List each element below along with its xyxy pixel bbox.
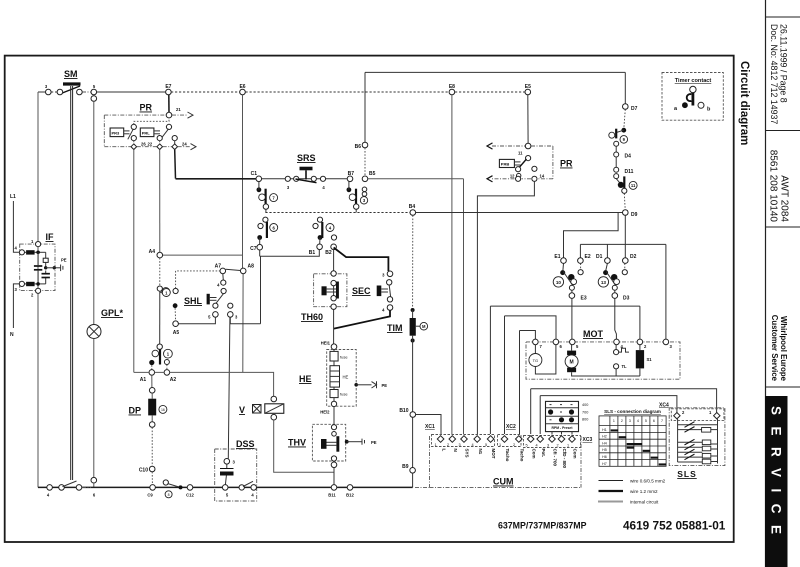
svg-text:fuse: fuse [340, 355, 348, 360]
svg-text:D7: D7 [631, 106, 638, 112]
svg-text:A1: A1 [140, 377, 147, 383]
svg-text:D9: D9 [631, 212, 638, 218]
svg-text:PE: PE [382, 383, 388, 388]
svg-text:16: 16 [161, 408, 165, 412]
svg-text:B1: B1 [309, 250, 316, 256]
svg-text:D2: D2 [630, 254, 637, 260]
svg-text:SM: SM [64, 69, 78, 79]
svg-text:1: 1 [499, 443, 501, 447]
svg-text:H5: H5 [602, 448, 607, 452]
svg-text:AWT 2084: AWT 2084 [779, 175, 790, 222]
svg-text:M: M [422, 324, 426, 329]
svg-text:26: 26 [141, 141, 146, 146]
svg-text:3: 3 [547, 444, 549, 448]
svg-text:3: 3 [629, 419, 631, 423]
svg-text:PE: PE [61, 258, 67, 263]
svg-text:4: 4 [536, 444, 538, 448]
svg-text:MOT: MOT [491, 449, 496, 459]
svg-text:CfD - 800: CfD - 800 [562, 449, 567, 469]
svg-text:D11: D11 [625, 169, 634, 175]
svg-text:5: 5 [645, 419, 647, 423]
svg-text:C7: C7 [250, 246, 257, 252]
svg-text:1: 1 [435, 443, 437, 447]
svg-text:2: 2 [447, 443, 449, 447]
svg-text:B4: B4 [409, 204, 416, 210]
svg-text:SRS: SRS [297, 153, 316, 163]
svg-text:RPM - Preset: RPM - Preset [552, 426, 574, 430]
svg-text:HE/2: HE/2 [320, 410, 330, 415]
svg-text:B2: B2 [325, 250, 332, 256]
svg-text:Timer contact: Timer contact [675, 78, 712, 84]
svg-text:1: 1 [613, 419, 615, 423]
svg-text:Tacho: Tacho [505, 449, 510, 462]
svg-text:26.11.1999 / Page 8: 26.11.1999 / Page 8 [779, 24, 789, 103]
svg-text:11: 11 [518, 151, 523, 156]
svg-text:SEC: SEC [352, 286, 371, 296]
svg-text:Doc. No: 4812 712 14937: Doc. No: 4812 712 14937 [769, 24, 779, 124]
svg-text:PRL: PRL [142, 131, 151, 136]
svg-text:L1: L1 [10, 194, 16, 200]
svg-text:Com: Com [573, 449, 578, 459]
svg-text:1: 1 [567, 444, 569, 448]
svg-text:HEI1: HEI1 [321, 341, 331, 346]
svg-text:XC4: XC4 [659, 403, 669, 409]
svg-text:D1: D1 [596, 254, 603, 260]
svg-text:C9: C9 [147, 493, 153, 498]
svg-text:SLS - connection diagram: SLS - connection diagram [604, 409, 661, 414]
svg-text:MOT: MOT [583, 329, 603, 339]
svg-text:400: 400 [582, 403, 588, 407]
svg-text:CfI - 700: CfI - 700 [553, 449, 558, 467]
svg-text:5: 5 [485, 443, 487, 447]
svg-text:Customer Service: Customer Service [770, 315, 779, 382]
svg-text:PR3: PR3 [112, 131, 121, 136]
svg-text:4619 752 05881-01: 4619 752 05881-01 [623, 519, 726, 533]
svg-text:E2: E2 [585, 254, 591, 260]
svg-text:A8: A8 [248, 264, 255, 270]
svg-text:PR: PR [140, 103, 153, 113]
svg-text:H7: H7 [602, 462, 607, 466]
svg-text:22: 22 [148, 141, 153, 146]
svg-text:4: 4 [472, 443, 474, 447]
svg-text:24: 24 [182, 141, 187, 146]
svg-text:N: N [453, 449, 458, 452]
svg-text:2: 2 [513, 443, 515, 447]
svg-text:internal circuit: internal circuit [630, 500, 659, 505]
svg-text:Pot.: Pot. [541, 449, 546, 458]
svg-text:L: L [441, 449, 446, 452]
svg-text:A4: A4 [149, 249, 156, 255]
svg-text:DSS: DSS [236, 439, 255, 449]
svg-text:D3: D3 [623, 296, 630, 302]
svg-text:TIM: TIM [387, 323, 403, 333]
svg-text:DP: DP [129, 406, 142, 416]
svg-text:V: V [239, 405, 245, 415]
svg-text:2: 2 [557, 444, 559, 448]
svg-text:XC1: XC1 [425, 424, 435, 430]
svg-text:HE: HE [343, 375, 349, 380]
svg-text:GPL*: GPL* [101, 308, 124, 318]
svg-text:E3: E3 [581, 296, 587, 302]
svg-text:10: 10 [556, 280, 562, 285]
svg-text:D4: D4 [625, 154, 632, 160]
svg-text:Circuit diagram: Circuit diagram [738, 61, 750, 145]
svg-text:CUM: CUM [493, 477, 514, 487]
svg-text:13: 13 [601, 280, 607, 285]
svg-text:637MP/737MP/837MP: 637MP/737MP/837MP [498, 521, 587, 531]
svg-text:wire 0.6/0.5 mm2: wire 0.6/0.5 mm2 [630, 479, 666, 484]
svg-text:B7: B7 [348, 171, 355, 177]
svg-text:TL: TL [622, 364, 628, 369]
svg-text:THV: THV [288, 438, 306, 448]
svg-text:H1: H1 [602, 428, 607, 432]
svg-text:800: 800 [582, 418, 588, 422]
svg-text:Tacho: Tacho [519, 449, 524, 462]
svg-text:XC2: XC2 [506, 424, 516, 430]
svg-text:B11: B11 [328, 493, 336, 498]
svg-text:TH60: TH60 [301, 312, 323, 322]
svg-text:IF: IF [46, 232, 55, 242]
svg-text:12: 12 [510, 174, 515, 179]
svg-text:N1: N1 [478, 449, 483, 455]
svg-text:7: 7 [661, 419, 663, 423]
svg-text:5: 5 [526, 444, 528, 448]
svg-text:B9: B9 [402, 464, 409, 470]
svg-text:11: 11 [631, 183, 636, 188]
svg-text:B6: B6 [355, 144, 362, 150]
svg-text:Com: Com [531, 449, 536, 459]
svg-text:PRB: PRB [501, 162, 510, 167]
svg-text:C10: C10 [139, 468, 148, 474]
svg-text:A7: A7 [215, 264, 222, 270]
svg-text:fuse: fuse [340, 392, 348, 397]
svg-text:C1: C1 [251, 171, 258, 177]
svg-text:700: 700 [582, 410, 588, 414]
svg-text:H6: H6 [602, 455, 607, 459]
svg-text:SHL: SHL [184, 296, 203, 306]
svg-text:B5: B5 [369, 171, 376, 177]
svg-text:HE: HE [299, 374, 312, 384]
svg-text:N: N [10, 332, 14, 338]
svg-text:M: M [570, 360, 574, 366]
svg-text:SLS: SLS [677, 469, 697, 479]
svg-text:SERVICE: SERVICE [769, 406, 784, 546]
svg-text:A5: A5 [173, 330, 180, 336]
svg-text:PE: PE [371, 440, 377, 445]
svg-text:B10: B10 [399, 408, 408, 414]
svg-text:6: 6 [653, 419, 655, 423]
svg-text:2: 2 [621, 419, 623, 423]
svg-text:PR: PR [560, 159, 573, 169]
svg-text:Whirlpool Europe: Whirlpool Europe [779, 316, 788, 382]
svg-text:8: 8 [168, 493, 170, 497]
svg-text:8561 208 10140: 8561 208 10140 [768, 150, 779, 223]
svg-text:SYS: SYS [465, 449, 470, 458]
svg-text:4: 4 [637, 419, 639, 423]
svg-text:H4: H4 [602, 441, 607, 445]
svg-text:E1: E1 [554, 254, 560, 260]
svg-text:XC3: XC3 [583, 437, 593, 443]
svg-text:C12: C12 [186, 493, 194, 498]
svg-text:S1: S1 [647, 357, 653, 362]
svg-text:3: 3 [459, 443, 461, 447]
svg-text:B12: B12 [346, 493, 354, 498]
svg-text:TG: TG [533, 358, 539, 363]
svg-text:A2: A2 [170, 377, 177, 383]
svg-text:14: 14 [540, 174, 545, 179]
svg-text:H2: H2 [602, 435, 607, 439]
svg-text:21: 21 [176, 107, 181, 112]
svg-text:wire 1.2 mm2: wire 1.2 mm2 [630, 489, 658, 494]
